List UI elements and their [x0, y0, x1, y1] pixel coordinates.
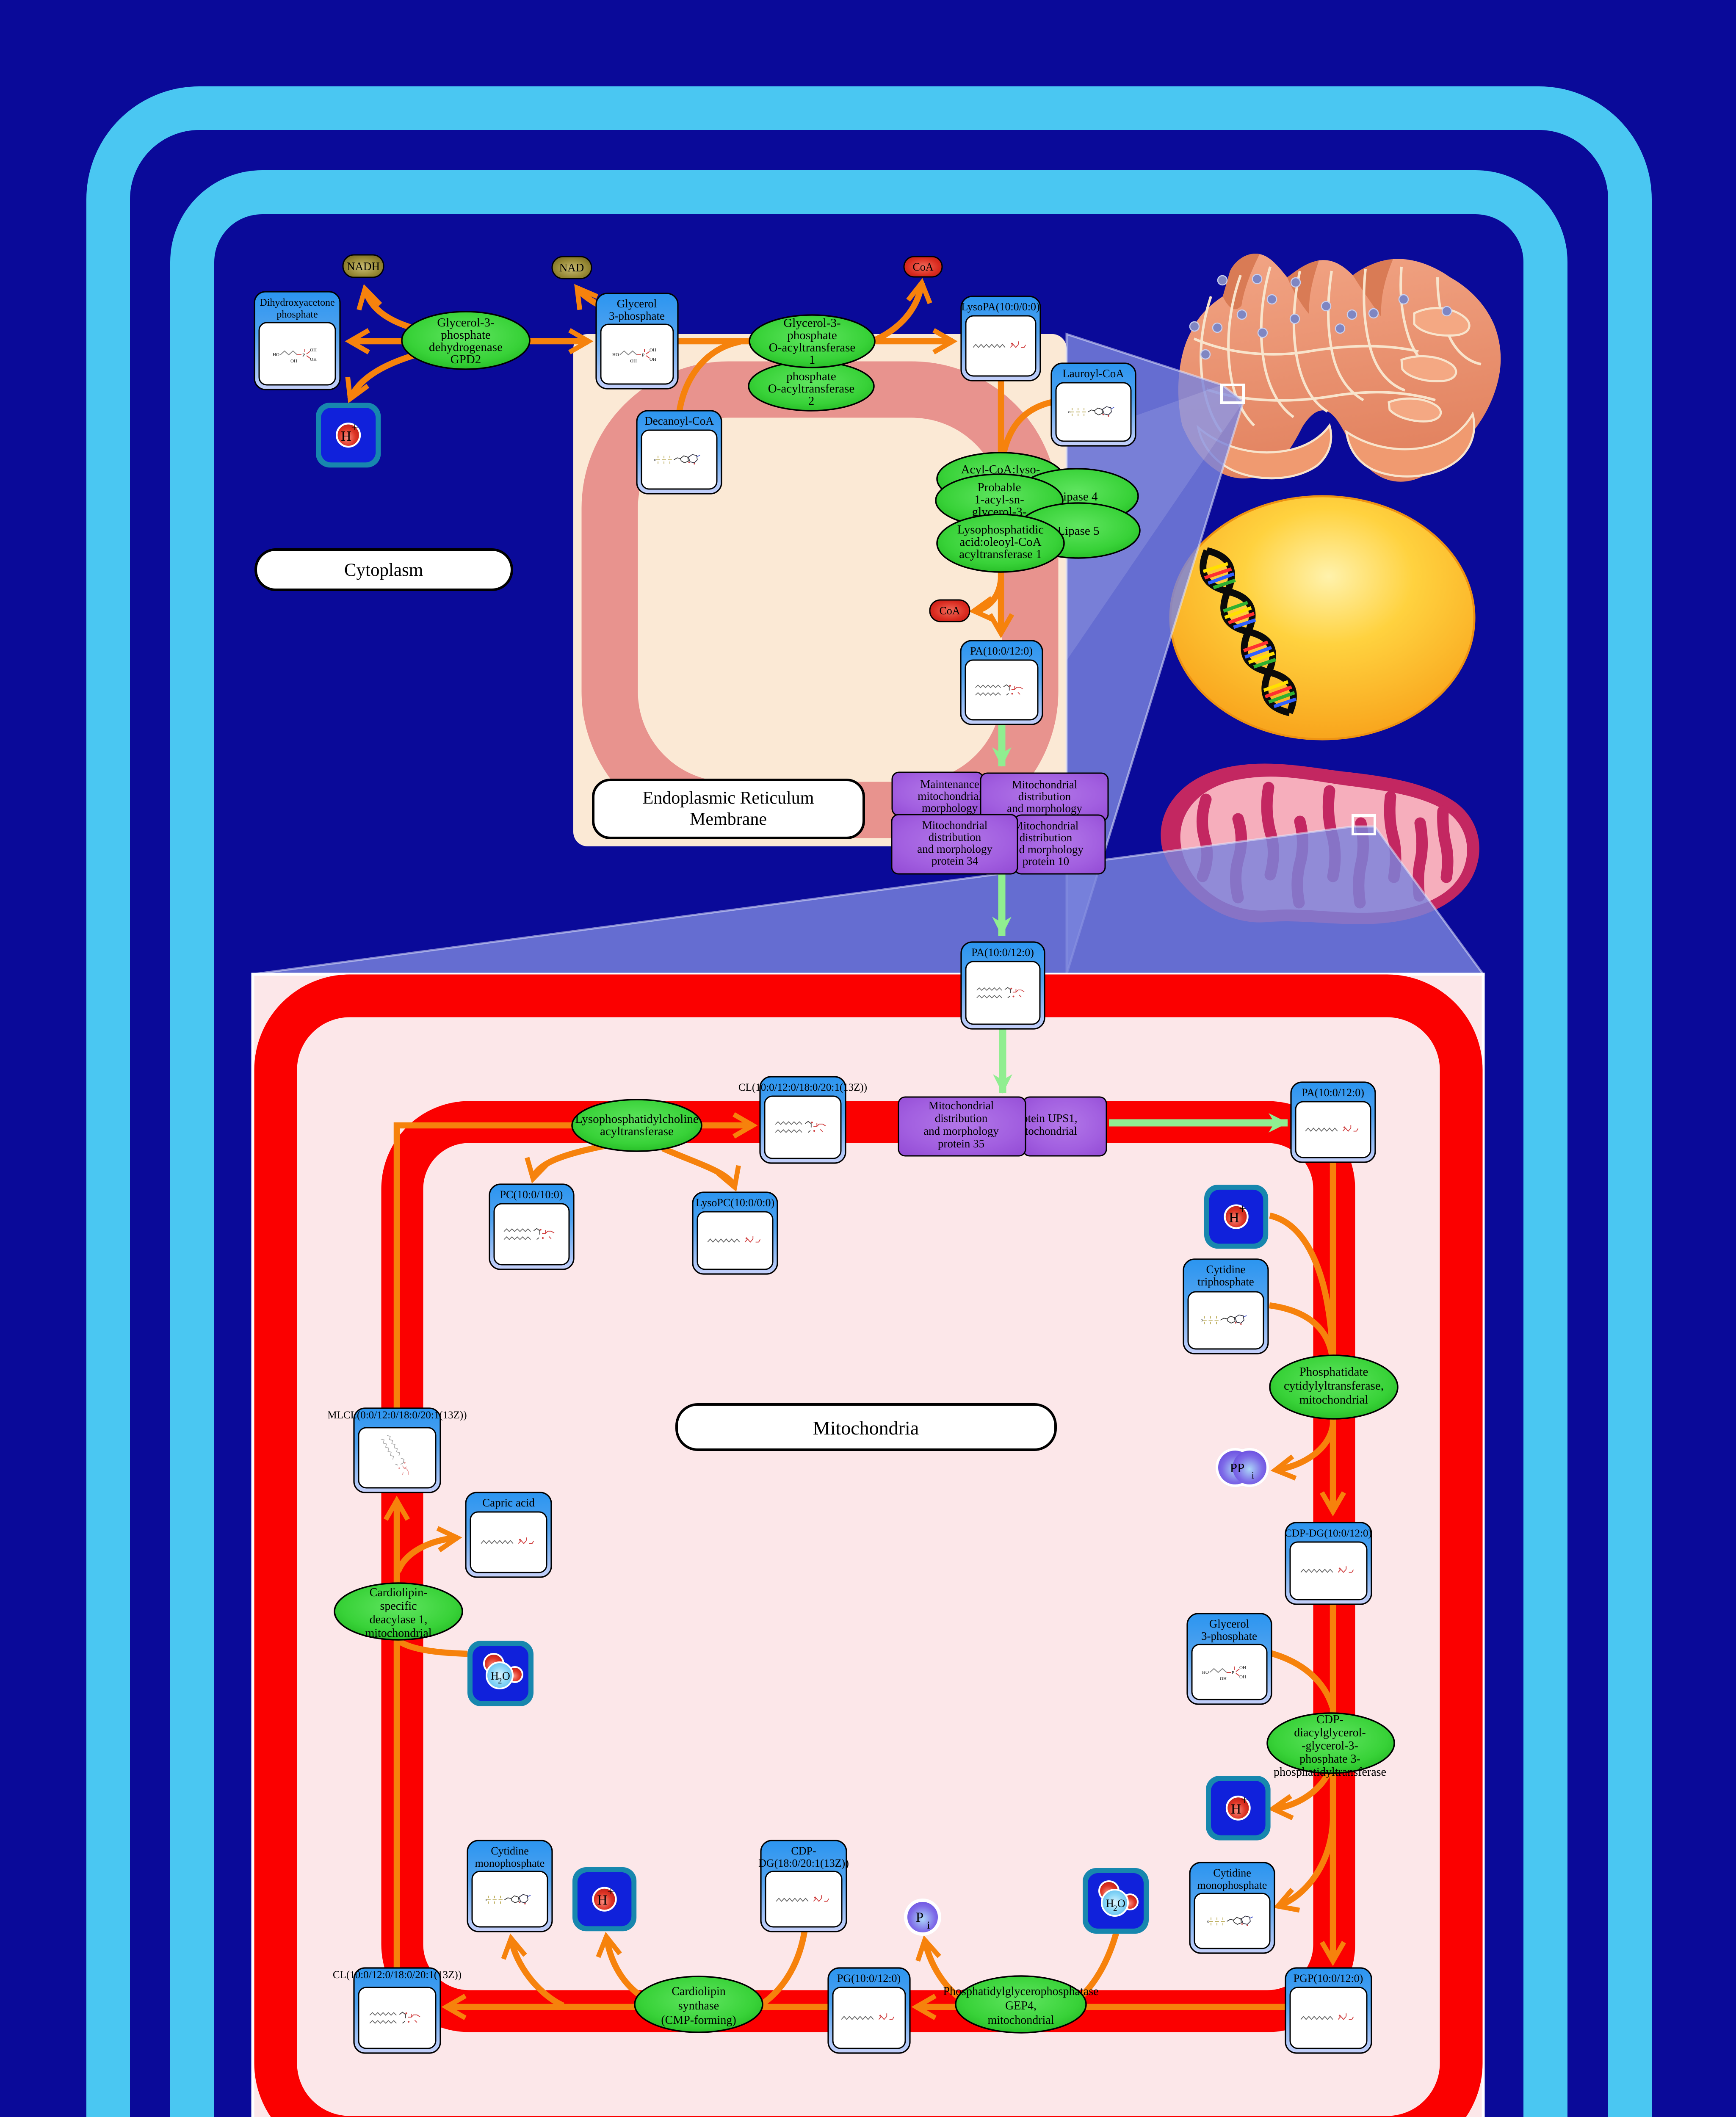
svg-text:Cardiolipin: Cardiolipin: [672, 1985, 726, 1998]
svg-text:CDP-DG(10:0/12:0): CDP-DG(10:0/12:0): [1285, 1528, 1372, 1539]
svg-text:Mitochondrial: Mitochondrial: [1013, 819, 1078, 832]
svg-text:GPD2: GPD2: [451, 353, 481, 366]
svg-text:Cytoplasm: Cytoplasm: [344, 560, 423, 580]
svg-text:Mitochondrial: Mitochondrial: [929, 1099, 994, 1112]
svg-text:Cytidine: Cytidine: [1213, 1867, 1251, 1879]
svg-text:LysoPA(10:0/0:0): LysoPA(10:0/0:0): [961, 301, 1039, 313]
svg-text:NADH: NADH: [347, 260, 380, 273]
svg-text:phosphate 3-: phosphate 3-: [1299, 1752, 1360, 1766]
svg-text:PA(10:0/12:0): PA(10:0/12:0): [1302, 1086, 1364, 1099]
svg-text:monophosphate: monophosphate: [1197, 1879, 1267, 1891]
svg-text:protein 35: protein 35: [938, 1137, 984, 1150]
svg-text:morphology: morphology: [922, 801, 978, 814]
svg-text:Glycerol-3-: Glycerol-3-: [437, 316, 494, 329]
svg-text:acyltransferase: acyltransferase: [600, 1125, 674, 1138]
svg-text:PA(10:0/12:0): PA(10:0/12:0): [971, 946, 1034, 959]
svg-text:-glycerol-3-: -glycerol-3-: [1302, 1739, 1358, 1752]
svg-text:2: 2: [808, 394, 815, 408]
svg-text:Lipase 5: Lipase 5: [1057, 524, 1099, 538]
svg-text:protein 10: protein 10: [1023, 855, 1069, 868]
svg-text:Cytidine: Cytidine: [1206, 1263, 1246, 1276]
svg-text:and morphology: and morphology: [917, 843, 992, 855]
svg-text:deacylase 1,: deacylase 1,: [370, 1613, 428, 1626]
svg-text:phosphate: phosphate: [787, 329, 837, 342]
svg-text:PG(10:0/12:0): PG(10:0/12:0): [837, 1972, 901, 1984]
svg-text:mitochondrial: mitochondrial: [1299, 1393, 1368, 1407]
svg-text:Decanoyl-CoA: Decanoyl-CoA: [644, 415, 714, 427]
svg-text:mitochondrial: mitochondrial: [365, 1627, 431, 1640]
svg-text:3-phosphate: 3-phosphate: [1201, 1630, 1257, 1642]
svg-text:PP: PP: [1230, 1460, 1244, 1475]
svg-text:triphosphate: triphosphate: [1197, 1275, 1254, 1288]
svg-text:(CMP-forming): (CMP-forming): [661, 2014, 736, 2027]
svg-text:dehydrogenase: dehydrogenase: [429, 340, 503, 354]
svg-text:phosphate: phosphate: [786, 370, 836, 383]
svg-text:synthase: synthase: [678, 1999, 719, 2012]
svg-text:Capric acid: Capric acid: [482, 1496, 535, 1509]
svg-text:CoA: CoA: [912, 261, 933, 273]
svg-text:mitochondrial: mitochondrial: [987, 2014, 1054, 2027]
svg-text:NAD: NAD: [559, 261, 584, 274]
svg-text:distribution: distribution: [1020, 831, 1073, 844]
svg-text:acid:oleoyl-CoA: acid:oleoyl-CoA: [959, 535, 1041, 549]
svg-text:phosphate: phosphate: [276, 309, 318, 320]
svg-text:Mitochondria: Mitochondria: [813, 1417, 919, 1439]
svg-text:distribution: distribution: [935, 1112, 988, 1125]
svg-text:cytidylyltransferase,: cytidylyltransferase,: [1284, 1379, 1384, 1393]
svg-text:O-acyltransferase: O-acyltransferase: [768, 382, 855, 395]
svg-text:O-acyltransferase: O-acyltransferase: [769, 341, 856, 354]
svg-text:CL(10:0/12:0/18:0/20:1(13Z)): CL(10:0/12:0/18:0/20:1(13Z)): [333, 1969, 462, 1981]
svg-text:DG(18:0/20:1(13Z)): DG(18:0/20:1(13Z)): [758, 1857, 849, 1869]
svg-text:Glycerol-3-: Glycerol-3-: [783, 316, 840, 330]
svg-text:MLCL(0:0/12:0/18:0/20:1(13Z)): MLCL(0:0/12:0/18:0/20:1(13Z)): [327, 1409, 467, 1421]
svg-text:PC(10:0/10:0): PC(10:0/10:0): [500, 1188, 563, 1201]
svg-text:CDP-: CDP-: [791, 1845, 816, 1857]
svg-text:Dihydroxyacetone: Dihydroxyacetone: [260, 297, 334, 308]
svg-text:phosphatidyltransferase: phosphatidyltransferase: [1274, 1766, 1386, 1779]
svg-text:3-phosphate: 3-phosphate: [609, 310, 665, 322]
svg-text:acyltransferase 1: acyltransferase 1: [959, 547, 1042, 561]
svg-text:protein 34: protein 34: [932, 854, 979, 867]
svg-text:P: P: [916, 1910, 923, 1925]
svg-text:CL(10:0/12:0/18:0/20:1(13Z)): CL(10:0/12:0/18:0/20:1(13Z)): [738, 1082, 867, 1093]
svg-text:Cardiolipin-: Cardiolipin-: [370, 1586, 428, 1599]
svg-text:Endoplasmic Reticulum: Endoplasmic Reticulum: [643, 788, 814, 808]
svg-text:phosphate: phosphate: [441, 328, 491, 342]
svg-text:Membrane: Membrane: [690, 810, 767, 829]
svg-text:and morphology: and morphology: [1007, 802, 1082, 815]
svg-text:and morphology: and morphology: [1008, 843, 1084, 856]
svg-text:CoA: CoA: [939, 605, 960, 617]
svg-text:monophosphate: monophosphate: [475, 1857, 545, 1869]
svg-text:Lysophosphatidic: Lysophosphatidic: [957, 523, 1044, 536]
svg-text:Maintenance: Maintenance: [920, 778, 979, 790]
svg-text:distribution: distribution: [1018, 790, 1071, 803]
svg-text:i: i: [927, 1920, 930, 1931]
svg-text:Glycerol: Glycerol: [617, 297, 657, 310]
svg-text:mitochondrial: mitochondrial: [918, 790, 981, 802]
svg-text:LysoPC(10:0/0:0): LysoPC(10:0/0:0): [696, 1197, 774, 1209]
svg-text:PGP(10:0/12:0): PGP(10:0/12:0): [1294, 1972, 1363, 1984]
svg-text:GEP4,: GEP4,: [1005, 1999, 1037, 2012]
svg-text:Lysophosphatidylcholine: Lysophosphatidylcholine: [575, 1112, 699, 1126]
svg-text:Cytidine: Cytidine: [491, 1845, 529, 1857]
svg-text:Probable: Probable: [977, 481, 1021, 494]
svg-text:specific: specific: [380, 1600, 417, 1613]
svg-text:distribution: distribution: [929, 831, 981, 843]
svg-text:and morphology: and morphology: [923, 1125, 999, 1137]
svg-text:Mitochondrial: Mitochondrial: [922, 819, 987, 832]
svg-text:i: i: [1252, 1470, 1255, 1481]
svg-text:1-acyl-sn-: 1-acyl-sn-: [974, 493, 1024, 506]
svg-text:1: 1: [809, 353, 815, 367]
svg-text:PA(10:0/12:0): PA(10:0/12:0): [970, 645, 1033, 657]
svg-text:Phosphatidate: Phosphatidate: [1299, 1365, 1368, 1379]
svg-text:Glycerol: Glycerol: [1209, 1617, 1249, 1630]
svg-text:diacylglycerol-: diacylglycerol-: [1294, 1726, 1366, 1739]
svg-text:Lauroyl-CoA: Lauroyl-CoA: [1062, 367, 1124, 380]
svg-text:Mitochondrial: Mitochondrial: [1012, 778, 1077, 791]
svg-text:CDP-: CDP-: [1316, 1713, 1343, 1726]
svg-text:Phosphatidylglycerophosphatase: Phosphatidylglycerophosphatase: [943, 1985, 1098, 1998]
